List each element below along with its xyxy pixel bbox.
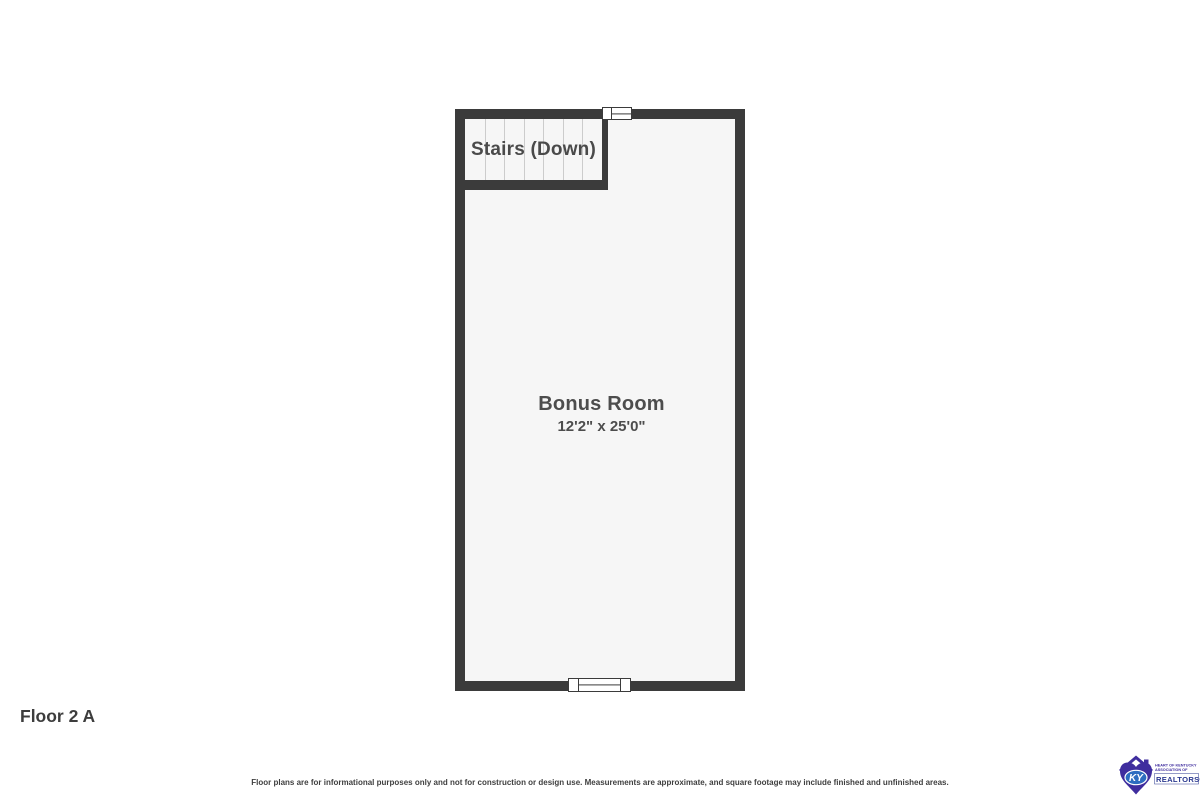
disclaimer-text: Floor plans are for informational purpos… <box>0 778 1200 787</box>
window-glass-line <box>578 684 621 685</box>
stairs-label: Stairs (Down) <box>471 139 596 161</box>
logo-org-line1: HEART OF KENTUCKY <box>1155 764 1197 768</box>
window-bottom <box>568 678 631 692</box>
logo-monogram: KY <box>1129 773 1144 784</box>
logo-org-line3: REALTORS® <box>1156 775 1200 784</box>
window-top <box>602 107 632 120</box>
room-dimensions: 12'2" x 25'0" <box>468 418 735 435</box>
stairs-bottom-wall <box>455 180 608 190</box>
window-glass-line <box>611 113 631 114</box>
floorplan-canvas: Stairs (Down) Bonus Room 12'2" x 25'0" F… <box>0 0 1200 800</box>
floor-title: Floor 2 A <box>20 706 95 727</box>
room-name: Bonus Room <box>468 393 735 416</box>
ky-realtors-logo: KY HEART OF KENTUCKY ASSOCIATION OF REAL… <box>1116 754 1200 800</box>
ky-realtors-logo-icon: KY HEART OF KENTUCKY ASSOCIATION OF REAL… <box>1116 754 1200 800</box>
logo-org-line2: ASSOCIATION OF <box>1155 768 1188 772</box>
room-label: Bonus Room 12'2" x 25'0" <box>468 393 735 435</box>
floor-plan-outline: Stairs (Down) Bonus Room 12'2" x 25'0" <box>455 109 745 691</box>
stairs-area: Stairs (Down) <box>465 119 602 180</box>
